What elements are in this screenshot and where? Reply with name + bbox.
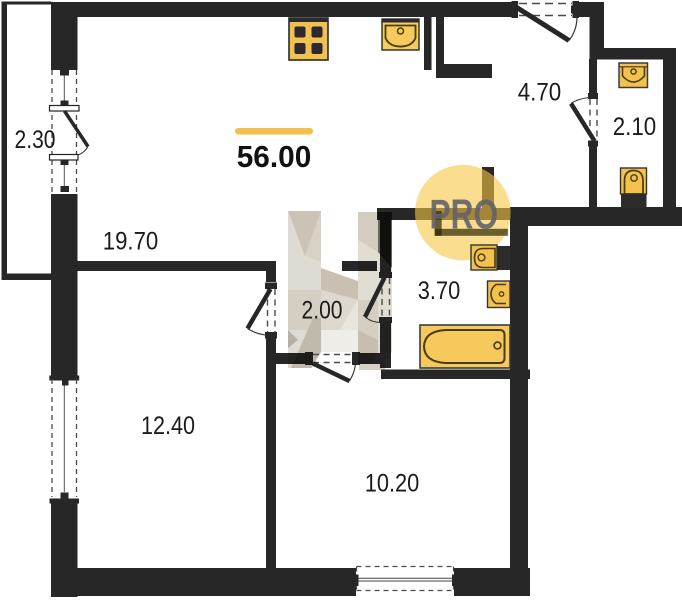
svg-text:PRO: PRO	[430, 190, 499, 237]
svg-text:2.10: 2.10	[613, 113, 657, 141]
svg-text:2.00: 2.00	[302, 297, 343, 325]
svg-text:3.70: 3.70	[418, 277, 461, 305]
svg-text:2.30: 2.30	[15, 126, 56, 154]
svg-text:10.20: 10.20	[365, 470, 420, 498]
svg-text:56.00: 56.00	[237, 139, 312, 174]
svg-text:12.40: 12.40	[141, 412, 195, 440]
svg-text:19.70: 19.70	[103, 228, 159, 256]
svg-text:4.70: 4.70	[518, 79, 562, 107]
